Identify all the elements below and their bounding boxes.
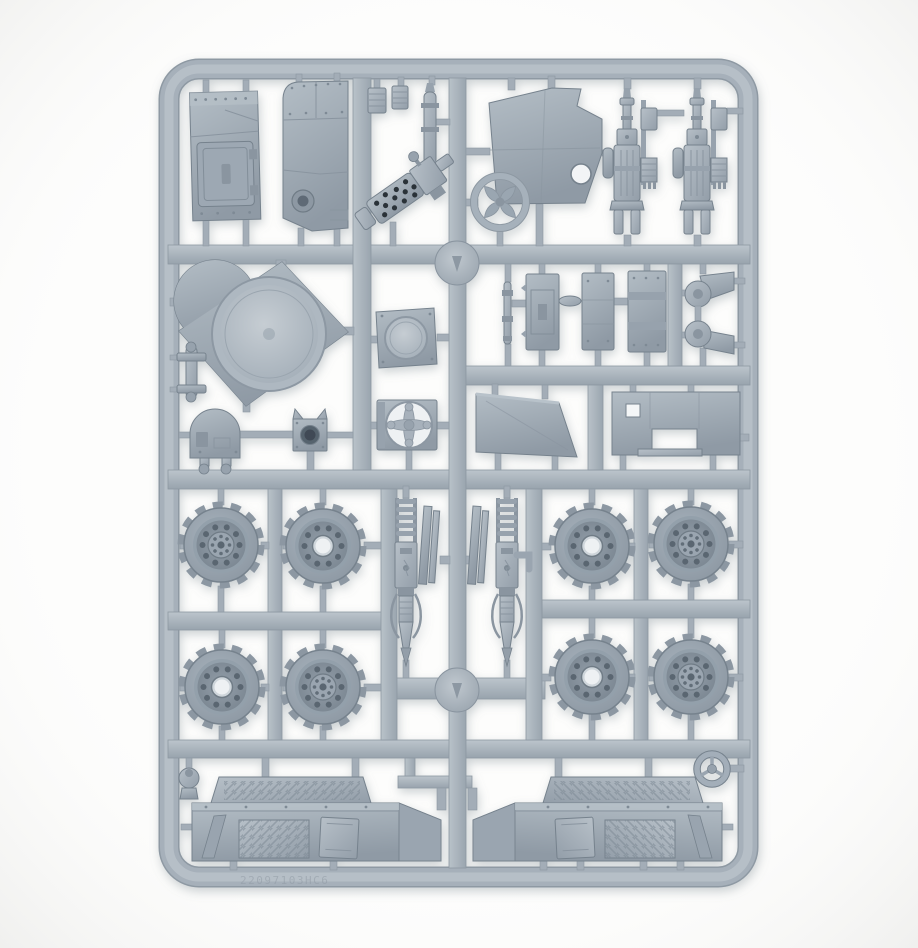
spring-clip-a [368, 88, 386, 113]
injection-gate-disc-top [435, 241, 479, 285]
round-hatch-plate [376, 308, 437, 368]
detail-plate-c [628, 271, 666, 352]
link-bar [559, 296, 581, 306]
armor-door-panel [189, 91, 260, 221]
sprue-photo-canvas: 22097103HC6 [0, 0, 918, 948]
cross-hub-plate [377, 400, 437, 450]
spring-clip-b [392, 86, 408, 109]
horn-knob [179, 768, 199, 799]
injection-gate-disc-bottom [435, 668, 479, 712]
embossed-code: 22097103HC6 [240, 874, 329, 887]
curved-armor-panel [283, 81, 348, 231]
sprue-photo: 22097103HC6 [0, 0, 918, 948]
linkage-rod [502, 282, 513, 344]
detail-plate-b [582, 273, 614, 350]
